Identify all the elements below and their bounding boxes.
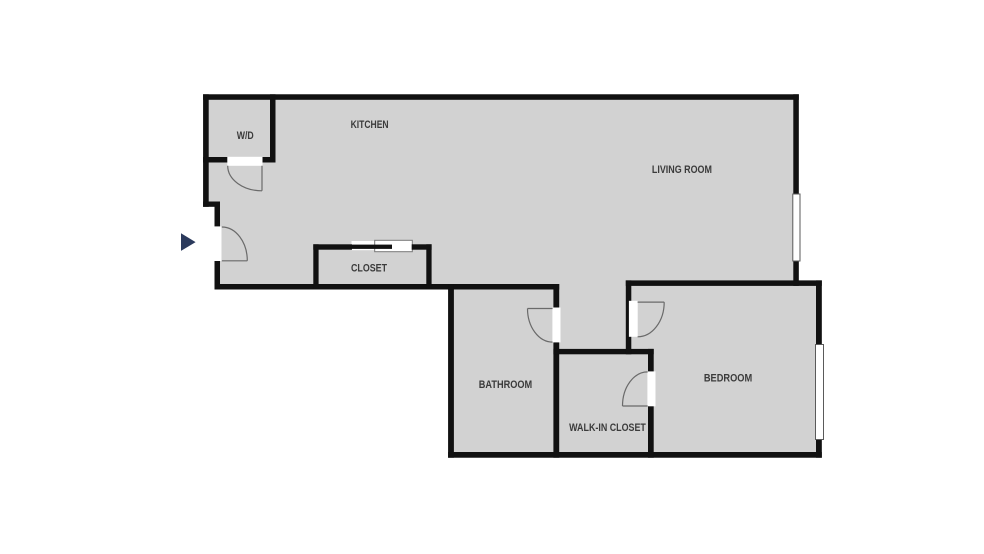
svg-text:LIVING ROOM: LIVING ROOM bbox=[652, 164, 712, 176]
svg-text:W/D: W/D bbox=[237, 130, 254, 142]
svg-text:CLOSET: CLOSET bbox=[351, 263, 388, 275]
svg-text:KITCHEN: KITCHEN bbox=[351, 119, 389, 131]
svg-text:WALK-IN CLOSET: WALK-IN CLOSET bbox=[569, 422, 646, 434]
svg-text:BEDROOM: BEDROOM bbox=[704, 373, 752, 385]
svg-text:BATHROOM: BATHROOM bbox=[479, 379, 532, 391]
